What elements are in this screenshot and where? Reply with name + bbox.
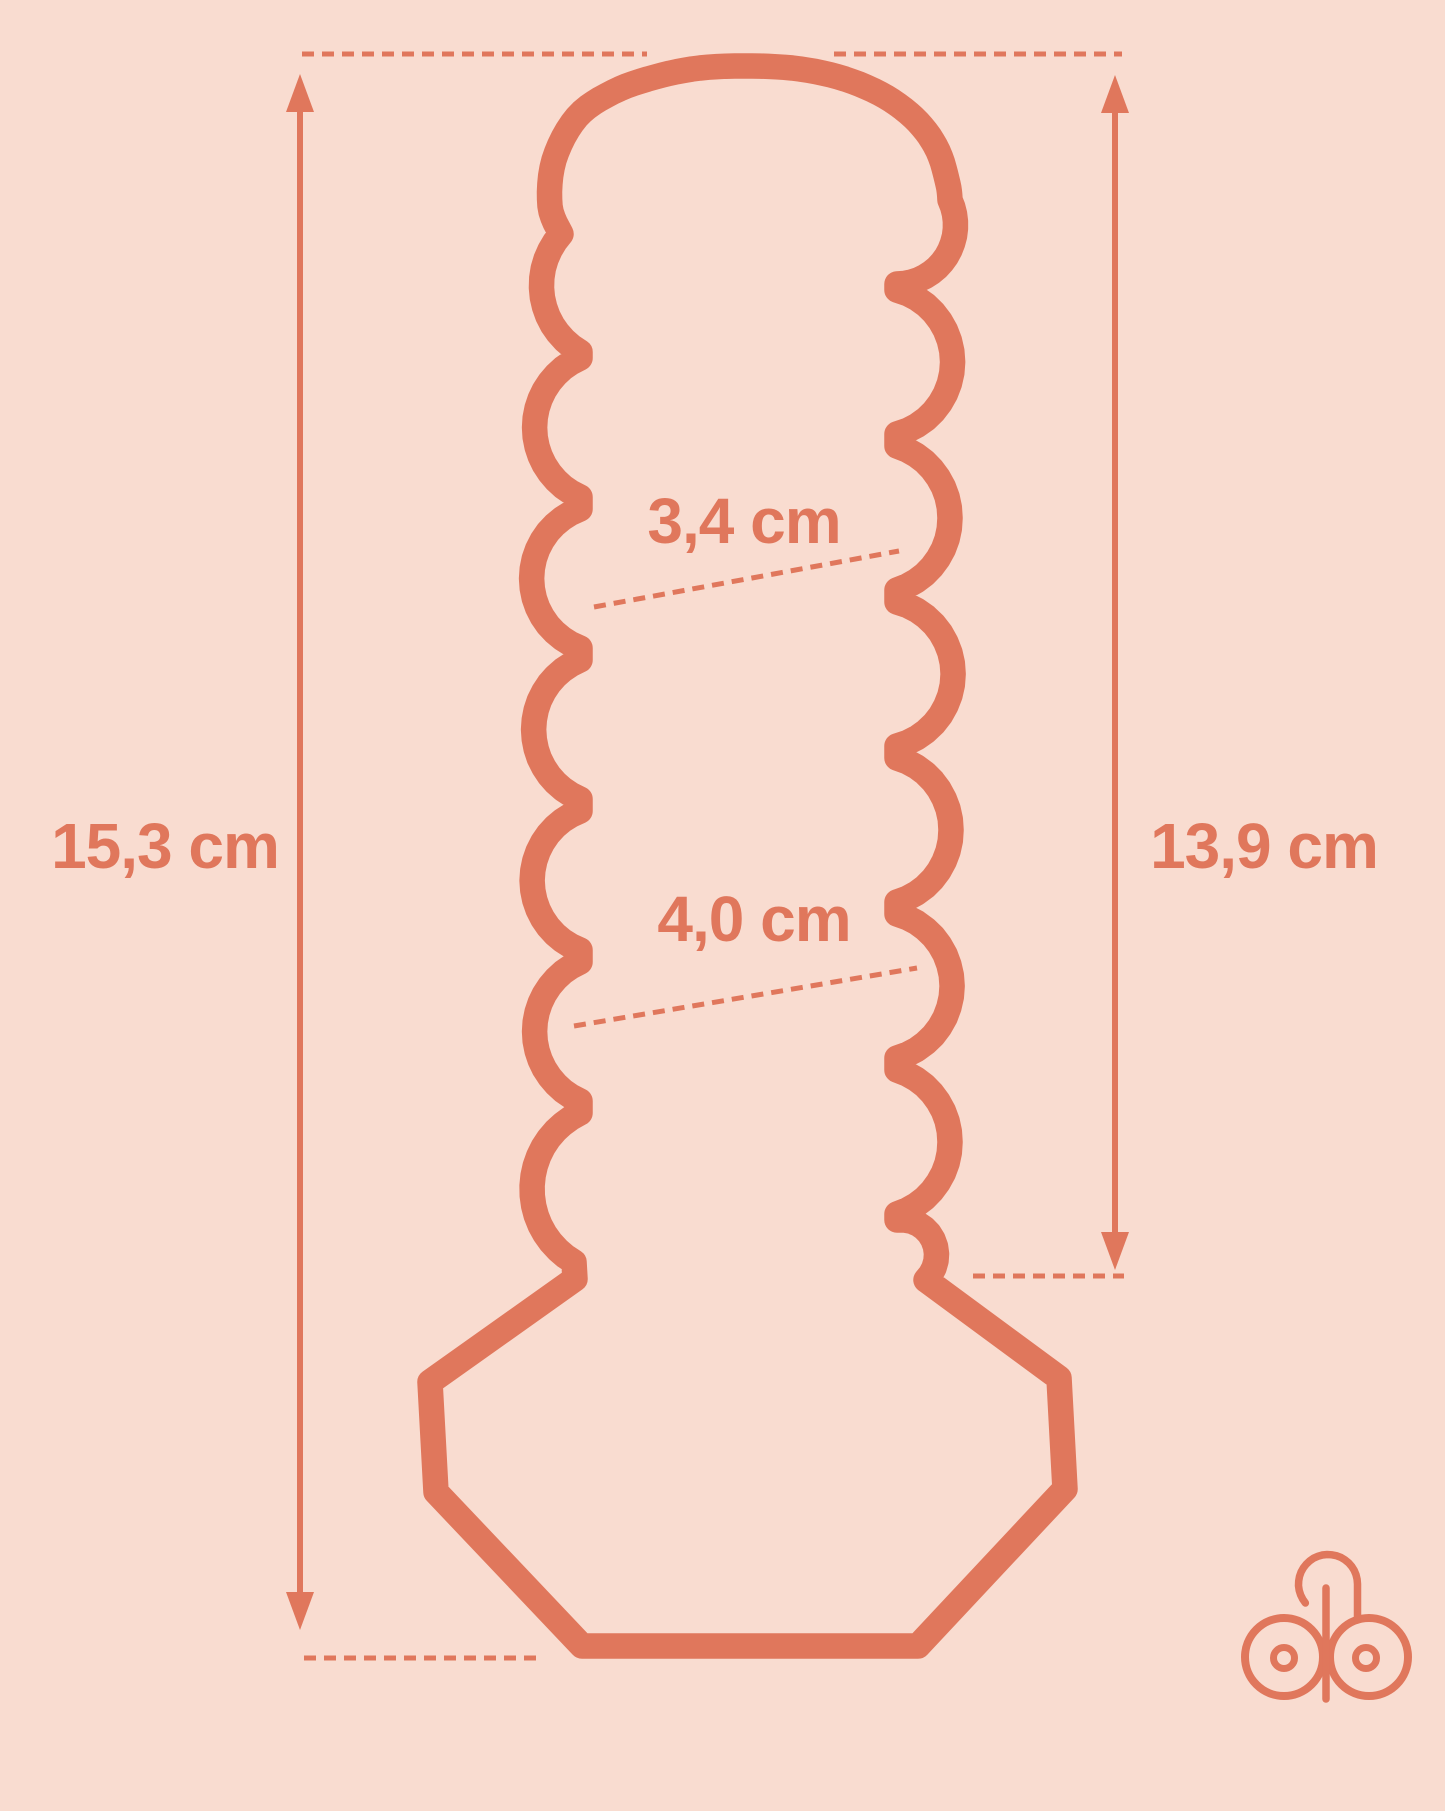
svg-text:15,3 cm: 15,3 cm	[51, 810, 279, 882]
svg-text:4,0 cm: 4,0 cm	[657, 883, 850, 955]
svg-text:13,9 cm: 13,9 cm	[1150, 810, 1378, 882]
svg-text:3,4 cm: 3,4 cm	[647, 485, 840, 557]
